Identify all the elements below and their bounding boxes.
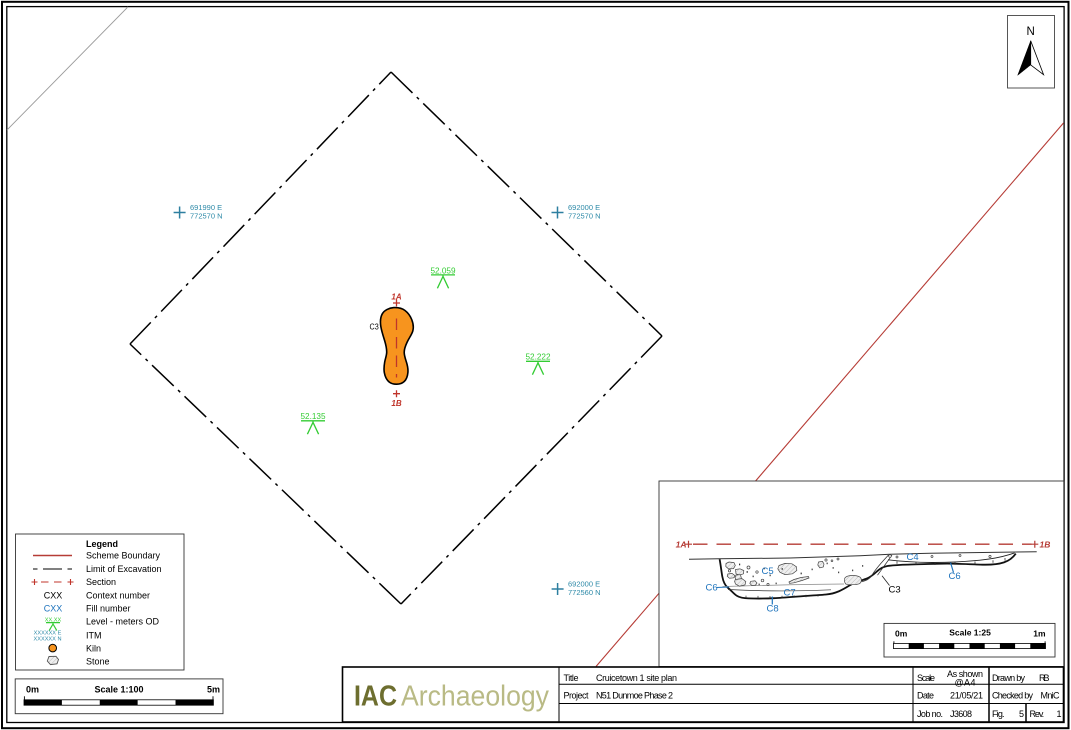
svg-text:CXX: CXX — [44, 604, 63, 614]
svg-text:Drawn by: Drawn by — [992, 673, 1026, 683]
svg-text:C6: C6 — [949, 571, 961, 582]
svg-text:0m: 0m — [895, 628, 908, 638]
svg-text:C5: C5 — [762, 566, 774, 577]
svg-text:Checked by: Checked by — [992, 690, 1034, 700]
svg-text:Fig.: Fig. — [992, 709, 1005, 719]
svg-text:XXXXXX N: XXXXXX N — [34, 636, 62, 642]
svg-text:Stone: Stone — [86, 657, 110, 667]
svg-text:1A: 1A — [676, 539, 687, 549]
svg-text:Date: Date — [917, 690, 934, 700]
svg-text:ITM: ITM — [86, 631, 102, 641]
svg-text:5: 5 — [1019, 709, 1024, 719]
svg-text:772560 N: 772560 N — [568, 588, 601, 597]
svg-text:772570 N: 772570 N — [568, 212, 601, 221]
svg-text:1m: 1m — [1033, 628, 1046, 638]
svg-text:Title: Title — [564, 673, 579, 683]
svg-text:Limit of Excavation: Limit of Excavation — [86, 564, 162, 574]
svg-text:Scale: Scale — [917, 673, 935, 683]
svg-text:Kiln: Kiln — [86, 644, 101, 654]
svg-text:N51 Dunmoe Phase 2: N51 Dunmoe Phase 2 — [596, 690, 673, 700]
svg-text:Archaeology: Archaeology — [401, 681, 549, 713]
svg-text:1B: 1B — [391, 399, 401, 408]
svg-text:C8: C8 — [767, 604, 779, 615]
svg-text:52.059: 52.059 — [430, 266, 455, 275]
svg-text:772570 N: 772570 N — [190, 212, 223, 221]
svg-text:Scale 1:25: Scale 1:25 — [949, 628, 991, 638]
svg-text:Fill number: Fill number — [86, 604, 131, 614]
svg-text:52.222: 52.222 — [525, 353, 550, 362]
svg-text:C3: C3 — [889, 585, 901, 596]
svg-text:C3: C3 — [370, 322, 379, 332]
svg-text:Scheme Boundary: Scheme Boundary — [86, 551, 161, 561]
svg-text:52.135: 52.135 — [300, 412, 325, 421]
svg-text:Rev.: Rev. — [1030, 709, 1045, 719]
svg-text:Scale 1:100: Scale 1:100 — [94, 684, 143, 694]
svg-text:5m: 5m — [207, 684, 220, 694]
svg-text:0m: 0m — [26, 684, 39, 694]
svg-text:C6: C6 — [706, 583, 718, 594]
svg-text:CXX: CXX — [44, 591, 63, 601]
svg-text:Legend: Legend — [86, 539, 118, 549]
svg-text:IAC: IAC — [354, 681, 397, 713]
svg-text:1: 1 — [1057, 709, 1062, 719]
svg-text:MniC: MniC — [1041, 690, 1061, 700]
svg-text:Context number: Context number — [86, 591, 150, 601]
svg-text:C7: C7 — [784, 587, 796, 598]
svg-text:Section: Section — [86, 577, 116, 587]
svg-text:1B: 1B — [1040, 539, 1051, 549]
svg-text:Project: Project — [564, 690, 589, 700]
svg-text:C4: C4 — [907, 552, 919, 563]
svg-text:Cruicetown 1 site plan: Cruicetown 1 site plan — [596, 673, 677, 683]
svg-text:21/05/21: 21/05/21 — [950, 690, 983, 700]
svg-text:Job no.: Job no. — [917, 709, 943, 719]
svg-text:Level - meters OD: Level - meters OD — [86, 617, 160, 627]
svg-text:@A4: @A4 — [955, 678, 976, 688]
svg-text:J3608: J3608 — [950, 709, 972, 719]
svg-text:N: N — [1027, 26, 1035, 38]
svg-text:RB: RB — [1039, 673, 1050, 683]
